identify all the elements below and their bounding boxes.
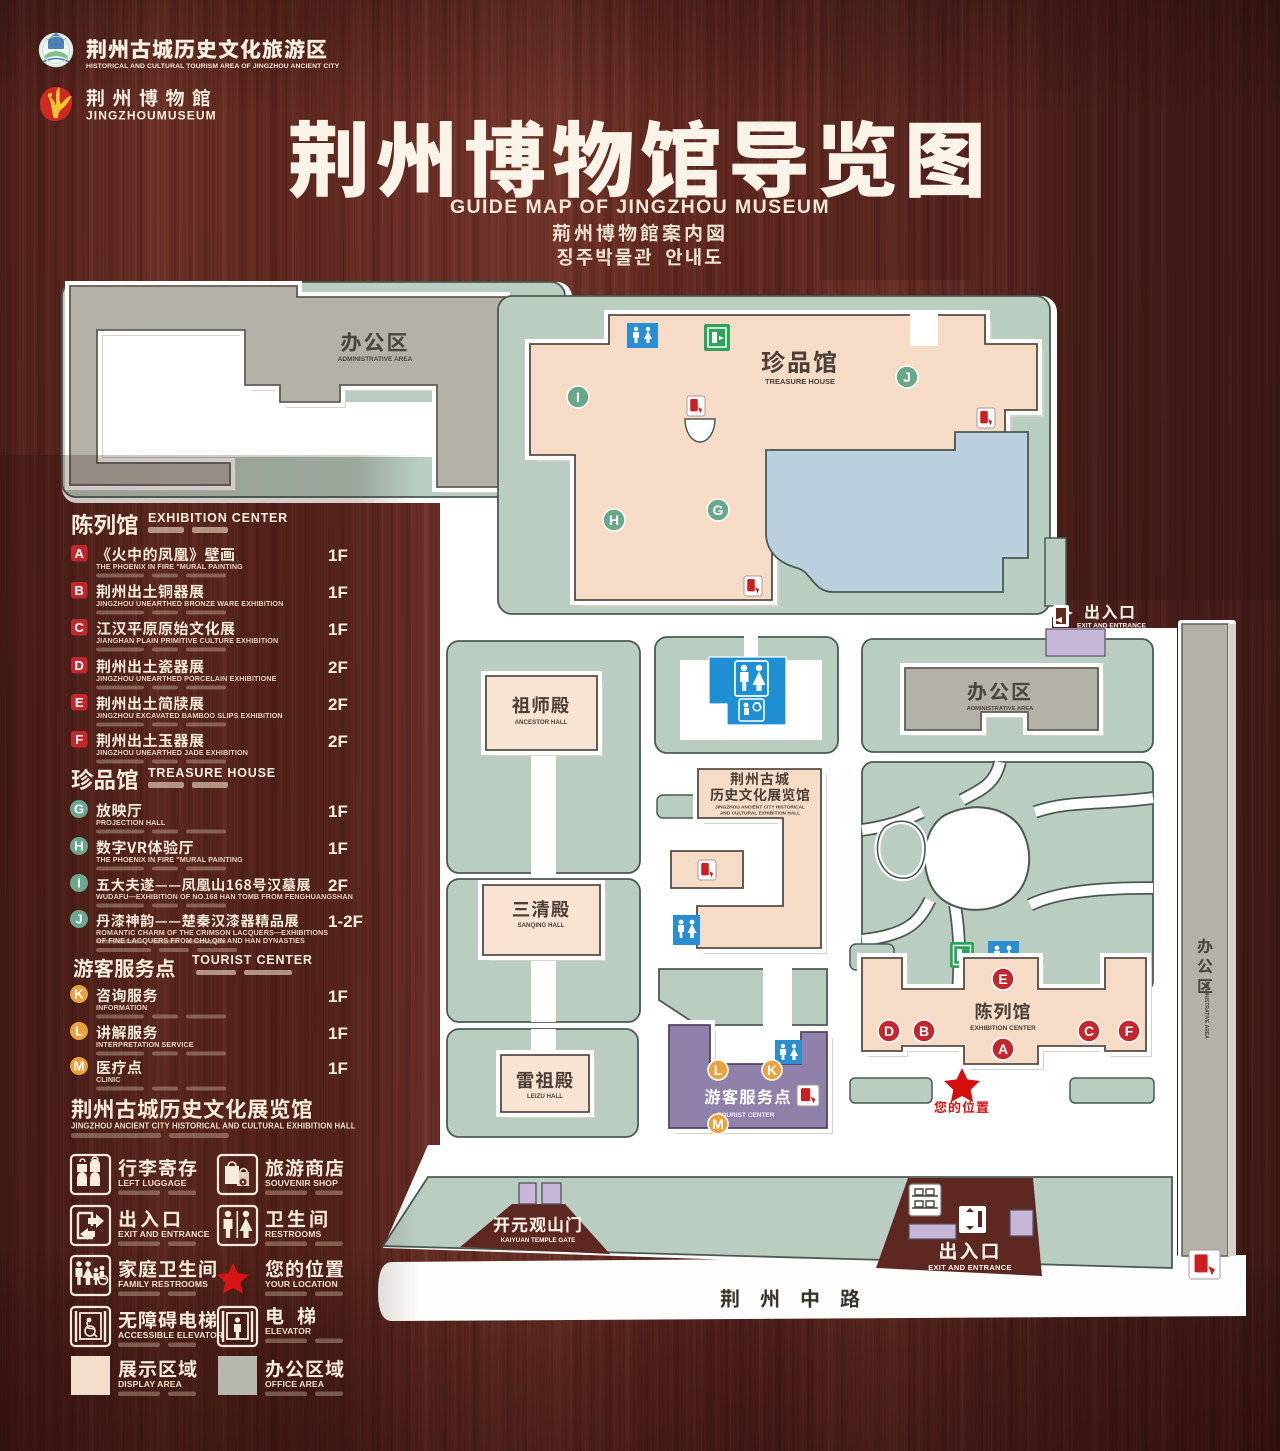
- svg-text:H: H: [609, 512, 619, 528]
- svg-text:2F: 2F: [328, 732, 348, 751]
- svg-text:TOURIST CENTER: TOURIST CENTER: [192, 953, 313, 967]
- svg-text:E: E: [75, 695, 84, 710]
- svg-text:INTERPRETATION SERVICE: INTERPRETATION SERVICE: [96, 1040, 194, 1049]
- svg-text:1F: 1F: [328, 620, 348, 639]
- svg-text:M: M: [712, 1116, 724, 1132]
- svg-text:JINGZHOU ANCIENT CITY HISTORIC: JINGZHOU ANCIENT CITY HISTORICAL: [715, 805, 805, 811]
- svg-text:D: D: [884, 1023, 894, 1039]
- svg-text:JIANGHAN PLAIN PRIMITIVE CULTU: JIANGHAN PLAIN PRIMITIVE CULTURE EXHIBIT…: [96, 636, 278, 645]
- svg-text:L: L: [75, 1024, 83, 1039]
- svg-text:YOUR LOCATION: YOUR LOCATION: [265, 1279, 338, 1289]
- svg-text:JINGZHOU UNEARTHED PORCELAIN E: JINGZHOU UNEARTHED PORCELAIN EXHIBITIONE: [96, 674, 277, 683]
- svg-text:THE PHOENIX IN FIRE "MURAL PAI: THE PHOENIX IN FIRE "MURAL PAINTING: [96, 855, 243, 864]
- svg-text:ADMINISTRATIVE AREA: ADMINISTRATIVE AREA: [1203, 981, 1209, 1039]
- svg-text:JINGZHOU ANCIENT CITY HISTORIC: JINGZHOU ANCIENT CITY HISTORICAL AND CUL…: [71, 1122, 356, 1131]
- svg-text:LEFT LUGGAGE: LEFT LUGGAGE: [118, 1178, 187, 1188]
- svg-text:E: E: [998, 971, 1007, 987]
- svg-text:OF FINE LACQUERS FROM CHU,QIN: OF FINE LACQUERS FROM CHU,QIN AND HAN DY…: [96, 936, 305, 945]
- svg-text:1F: 1F: [328, 1059, 348, 1078]
- svg-text:F: F: [1125, 1023, 1134, 1039]
- svg-text:A: A: [75, 546, 85, 561]
- svg-text:M: M: [74, 1059, 85, 1074]
- svg-text:C: C: [75, 620, 85, 635]
- svg-text:DISPLAY AREA: DISPLAY AREA: [118, 1379, 182, 1389]
- svg-text:I: I: [576, 389, 580, 405]
- svg-text:H: H: [74, 839, 83, 854]
- svg-text:JINGZHOU UNEARTHED BRONZE WARE: JINGZHOU UNEARTHED BRONZE WARE EXHIBITIO…: [96, 599, 283, 608]
- svg-text:TREASURE HOUSE: TREASURE HOUSE: [148, 766, 276, 780]
- svg-text:LEIZU HALL: LEIZU HALL: [527, 1093, 563, 1100]
- svg-text:1F: 1F: [328, 546, 348, 565]
- svg-text:K: K: [767, 1062, 777, 1078]
- svg-text:TREASURE HOUSE: TREASURE HOUSE: [765, 377, 835, 386]
- svg-text:RESTROOMS: RESTROOMS: [265, 1229, 321, 1239]
- svg-text:G: G: [713, 502, 724, 518]
- svg-text:ADMINISTRATIVE AREA: ADMINISTRATIVE AREA: [967, 706, 1034, 712]
- svg-text:ANCESTOR HALL: ANCESTOR HALL: [515, 719, 568, 726]
- svg-text:F: F: [75, 732, 83, 747]
- svg-text:FAMILY RESTROOMS: FAMILY RESTROOMS: [118, 1279, 208, 1289]
- svg-text:JINGZHOU EXCAVATED BAMBOO SLIP: JINGZHOU EXCAVATED BAMBOO SLIPS EXHIBITI…: [96, 711, 283, 720]
- svg-text:2F: 2F: [328, 658, 348, 677]
- svg-text:1F: 1F: [328, 802, 348, 821]
- svg-text:L: L: [714, 1062, 723, 1078]
- svg-text:1-2F: 1-2F: [328, 912, 363, 931]
- svg-text:I: I: [77, 876, 81, 891]
- svg-text:AND CULTURAL EXHIBITION HALL: AND CULTURAL EXHIBITION HALL: [720, 811, 800, 817]
- svg-text:J: J: [75, 912, 82, 927]
- svg-text:KAIYUAN TEMPLE GATE: KAIYUAN TEMPLE GATE: [501, 1237, 576, 1244]
- svg-text:1F: 1F: [328, 987, 348, 1006]
- svg-text:EXIT AND ENTRANCE: EXIT AND ENTRANCE: [928, 1263, 1012, 1272]
- svg-text:D: D: [75, 658, 84, 673]
- svg-text:2F: 2F: [328, 695, 348, 714]
- svg-text:OFFICE AREA: OFFICE AREA: [265, 1379, 324, 1389]
- svg-text:1F: 1F: [328, 839, 348, 858]
- svg-text:1F: 1F: [328, 583, 348, 602]
- svg-text:EXHIBITION CENTER: EXHIBITION CENTER: [970, 1025, 1036, 1032]
- svg-text:ADMINISTRATIVE AREA: ADMINISTRATIVE AREA: [338, 356, 413, 363]
- svg-text:A: A: [998, 1041, 1008, 1057]
- svg-text:CLINIC: CLINIC: [96, 1075, 121, 1084]
- svg-text:SOUVENIR SHOP: SOUVENIR SHOP: [265, 1178, 338, 1188]
- svg-text:ACCESSIBLE ELEVATOR: ACCESSIBLE ELEVATOR: [118, 1330, 224, 1340]
- svg-text:ELEVATOR: ELEVATOR: [265, 1326, 312, 1336]
- svg-text:B: B: [75, 583, 84, 598]
- svg-text:EXIT AND ENTRANCE: EXIT AND ENTRANCE: [118, 1229, 210, 1239]
- svg-text:G: G: [74, 802, 84, 817]
- svg-text:J: J: [903, 369, 911, 385]
- svg-text:1F: 1F: [328, 1024, 348, 1043]
- svg-text:INFORMATION: INFORMATION: [96, 1003, 147, 1012]
- svg-text:C: C: [1084, 1023, 1094, 1039]
- svg-text:JINGZHOU UNEARTHED JADE EXHIBI: JINGZHOU UNEARTHED JADE EXHIBITION: [96, 748, 248, 757]
- svg-text:EXHIBITION CENTER: EXHIBITION CENTER: [148, 511, 288, 525]
- svg-text:WUDAFU—EXHIBITION OF NO.168 HA: WUDAFU—EXHIBITION OF NO.168 HAN TOMB FRO…: [96, 892, 353, 901]
- svg-text:K: K: [74, 987, 84, 1002]
- svg-text:SANQING HALL: SANQING HALL: [517, 922, 564, 929]
- svg-text:GUIDE MAP OF JINGZHOU MUSEUM: GUIDE MAP OF JINGZHOU MUSEUM: [450, 196, 830, 218]
- svg-text:THE PHOENIX IN FIRE "MURAL PAI: THE PHOENIX IN FIRE "MURAL PAINTING: [96, 562, 243, 571]
- svg-text:PROJECTION HALL: PROJECTION HALL: [96, 818, 166, 827]
- svg-text:HISTORICAL AND CULTURAL TOURIS: HISTORICAL AND CULTURAL TOURISM AREA OF …: [86, 63, 340, 70]
- svg-text:JINGZHOUMUSEUM: JINGZHOUMUSEUM: [86, 109, 217, 123]
- svg-text:B: B: [919, 1023, 929, 1039]
